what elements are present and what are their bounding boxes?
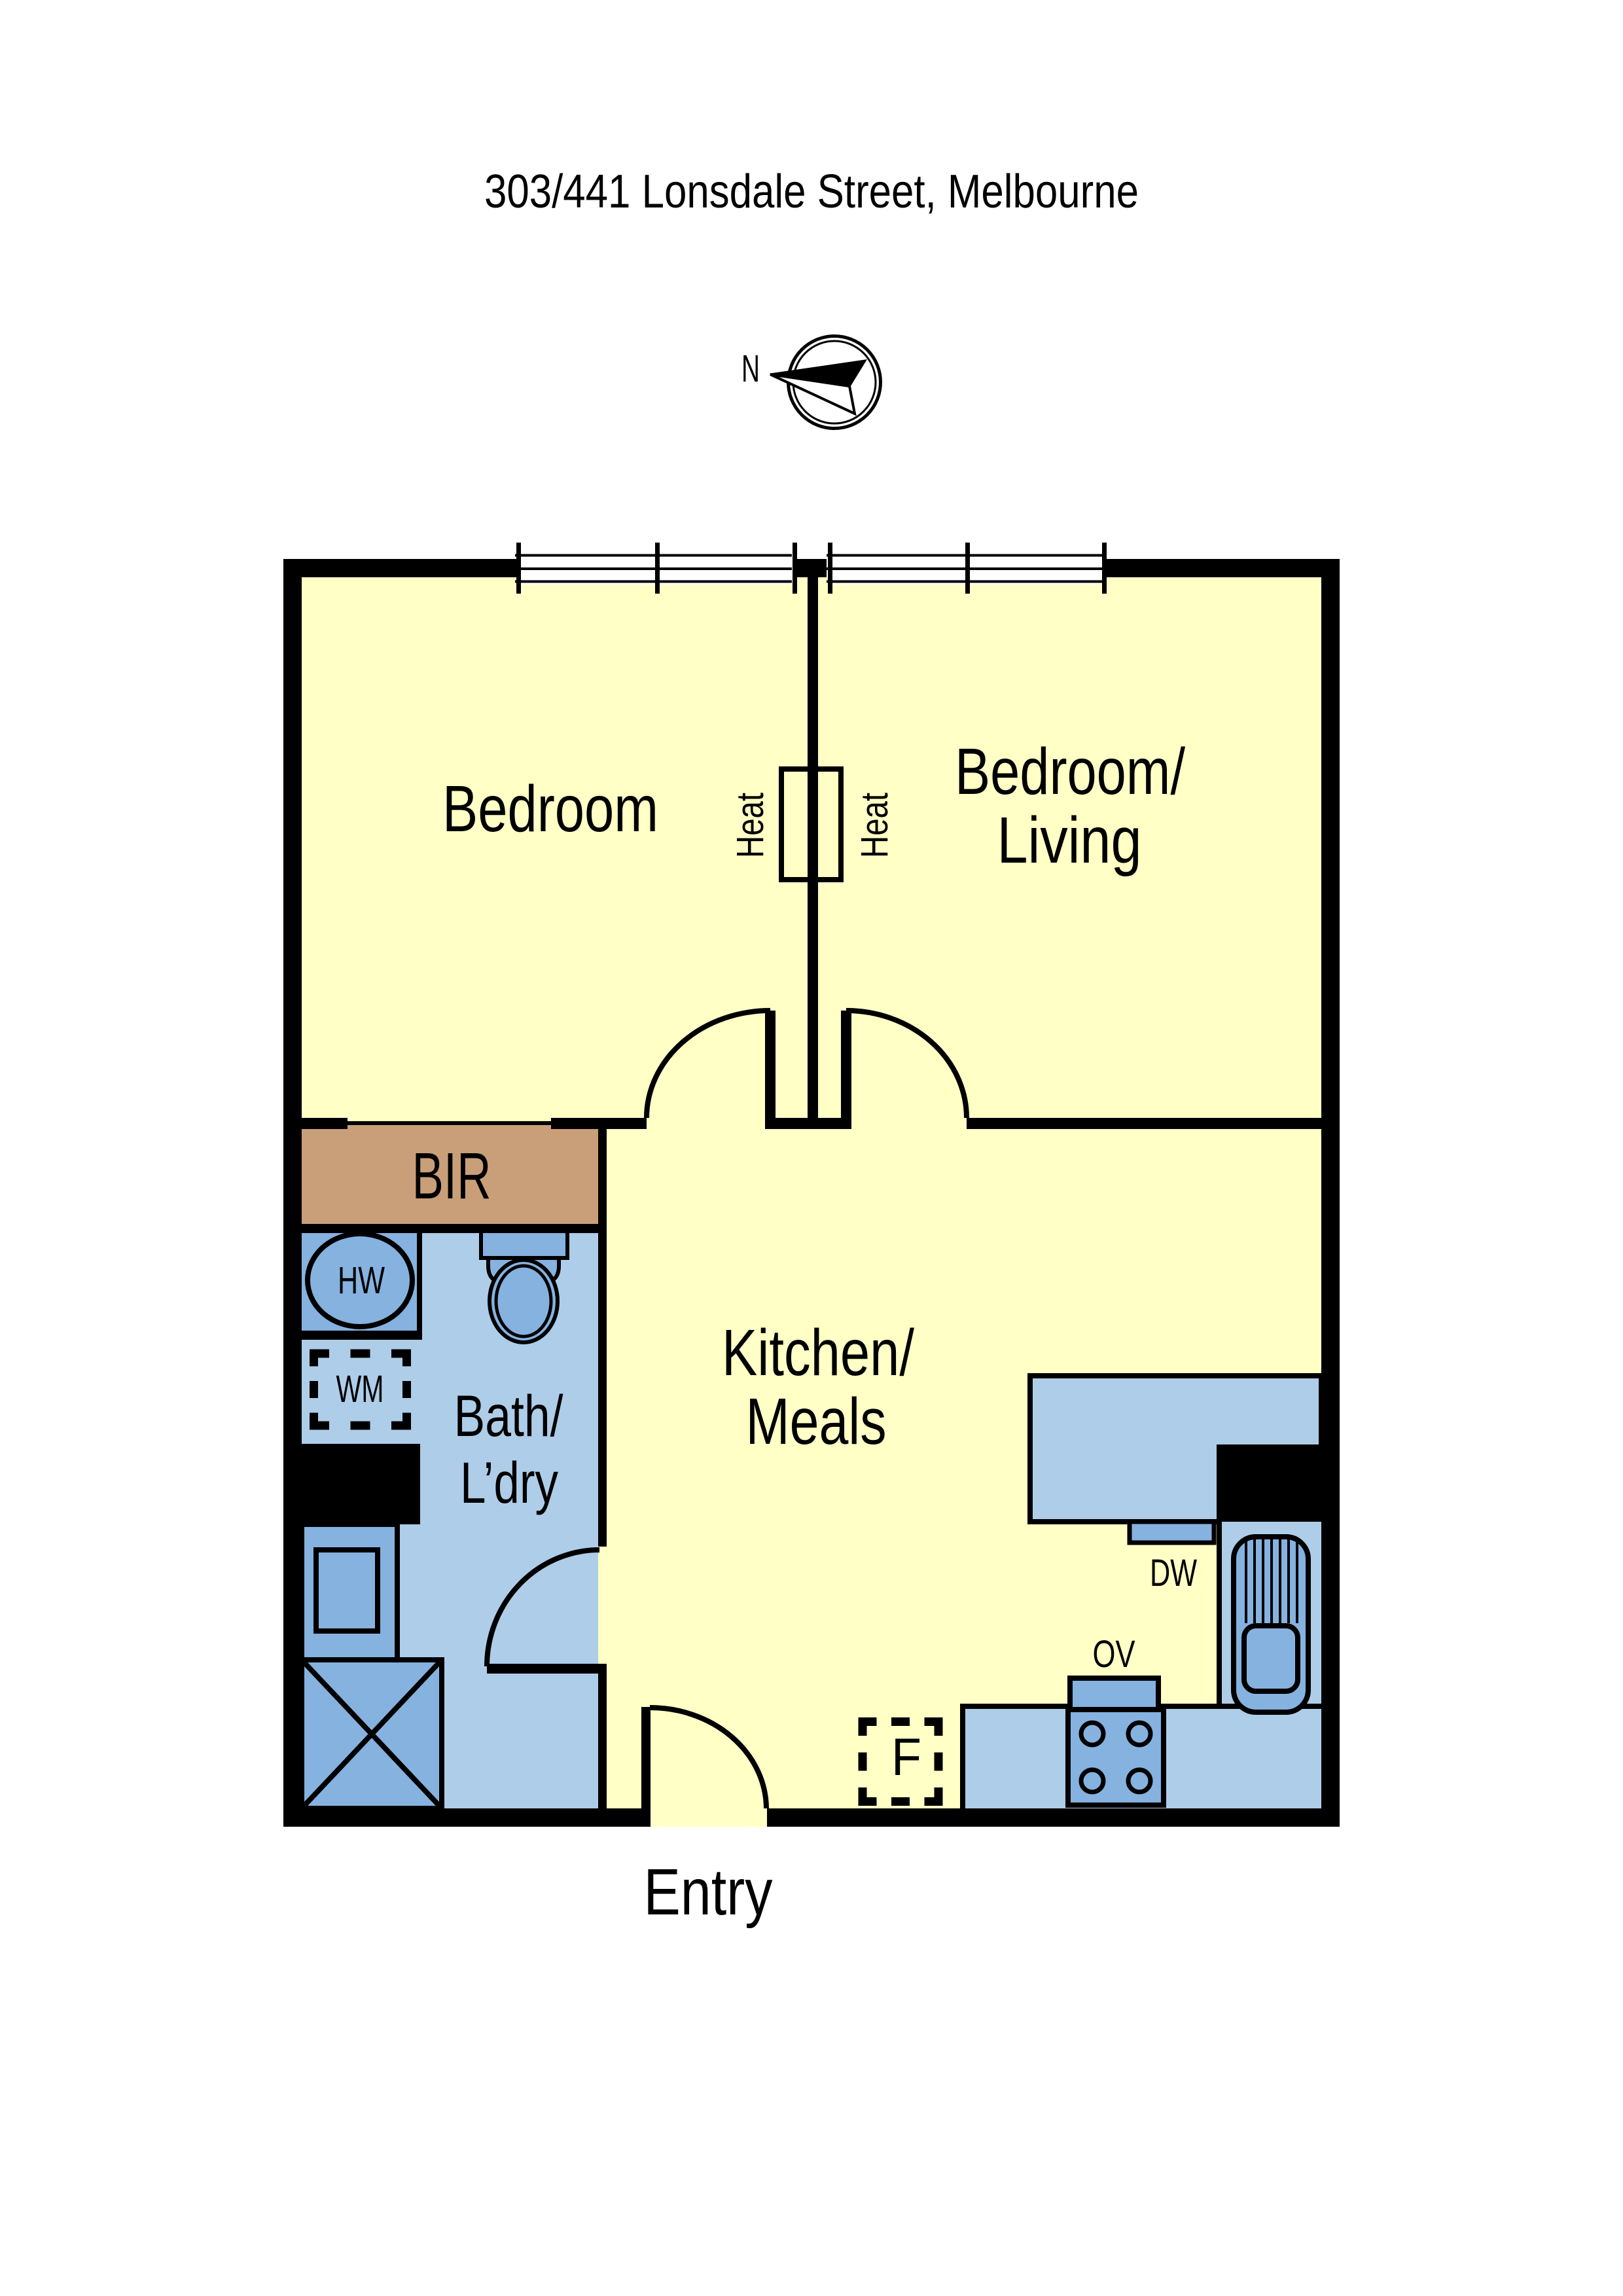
- svg-text:303/441 Lonsdale Street, Melbo: 303/441 Lonsdale Street, Melbourne: [484, 166, 1139, 218]
- svg-text:Heat: Heat: [853, 793, 896, 858]
- svg-text:Entry: Entry: [644, 1856, 773, 1929]
- svg-text:HW: HW: [338, 1259, 385, 1302]
- svg-text:DW: DW: [1150, 1552, 1197, 1594]
- svg-text:BIR: BIR: [412, 1139, 491, 1213]
- svg-text:OV: OV: [1093, 1633, 1135, 1676]
- svg-text:N: N: [741, 348, 760, 390]
- svg-text:Bedroom: Bedroom: [442, 772, 658, 846]
- svg-text:Living: Living: [997, 804, 1142, 877]
- svg-text:WM: WM: [336, 1368, 384, 1410]
- svg-text:Meals: Meals: [746, 1385, 887, 1458]
- svg-text:Bedroom/: Bedroom/: [955, 735, 1185, 808]
- svg-text:Heat: Heat: [729, 793, 772, 858]
- svg-text:L’dry: L’dry: [460, 1450, 558, 1515]
- svg-text:F: F: [891, 1728, 921, 1787]
- svg-text:Bath/: Bath/: [454, 1383, 563, 1448]
- svg-text:Kitchen/: Kitchen/: [722, 1316, 914, 1390]
